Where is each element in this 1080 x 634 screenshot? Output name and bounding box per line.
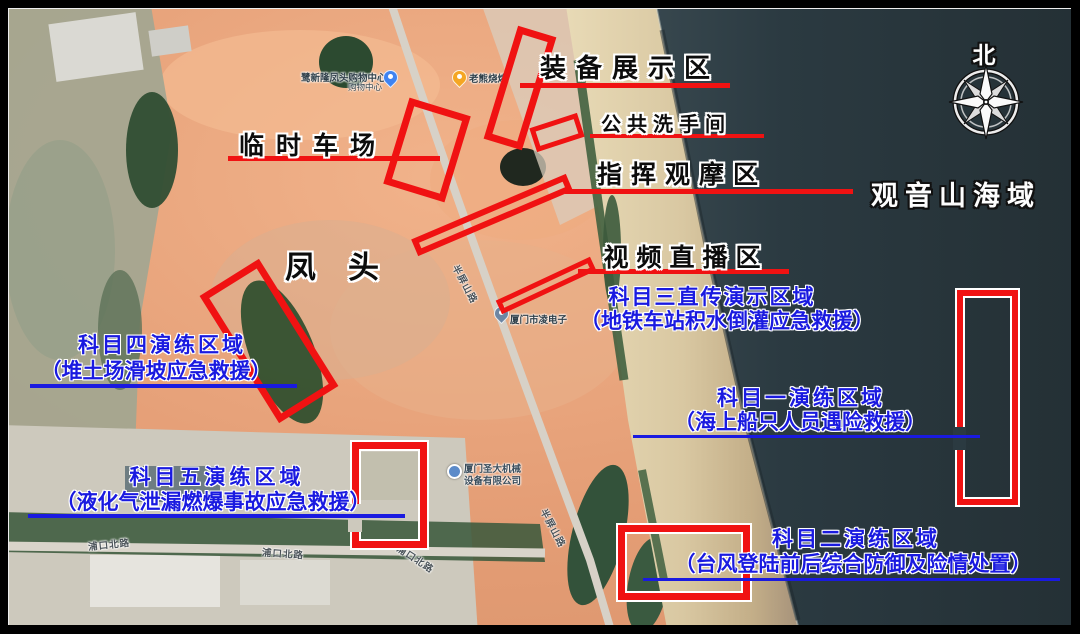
equipment-display-label: 装备展示区 (540, 48, 720, 85)
subject1-detail-label: （海上船只人员遇险救援） (674, 406, 926, 436)
sea-area-label: 观音山海域 (871, 174, 1041, 213)
subject2-underline (643, 578, 1060, 581)
compass-rose-icon (948, 64, 1024, 140)
video-live-label: 视频直播区 (603, 238, 768, 274)
shopping-pin-icon (383, 70, 398, 85)
restaurant-pin-icon (452, 70, 467, 85)
zone-subject1-gap (953, 427, 966, 450)
subject3-detail-label: （地铁车站积水倒灌应急救援） (580, 305, 874, 335)
command-observation-label: 指挥观摩区 (597, 155, 767, 191)
poi-machinery-label-line2: 设备有限公司 (464, 473, 521, 487)
subject4-detail-label: （堆土场滑坡应急救援） (41, 355, 272, 385)
road-pukoubei-label-center: 浦口北路 (262, 545, 305, 562)
subject5-detail-label: （液化气泄漏燃爆事故应急救援） (56, 486, 371, 516)
zone-subject1-outline (957, 290, 1018, 505)
fengtou-place-label: 凤头 (285, 242, 411, 287)
annotated-satellite-map: 装备展示区 公共洗手间 指挥观摩区 临时车场 视频直播区 凤头 观音山海域 北 (0, 0, 1080, 634)
subject2-detail-label: （台风登陆前后综合防御及险情处置） (675, 548, 1032, 578)
poi-shopping-center-category: 购物中心 (348, 81, 382, 93)
public-restroom-label: 公共洗手间 (601, 108, 731, 137)
poi-electronics-label: 厦门市凌电子 (510, 312, 567, 326)
temporary-parking-label: 临时车场 (239, 126, 387, 162)
poi-dot-icon (447, 464, 462, 479)
